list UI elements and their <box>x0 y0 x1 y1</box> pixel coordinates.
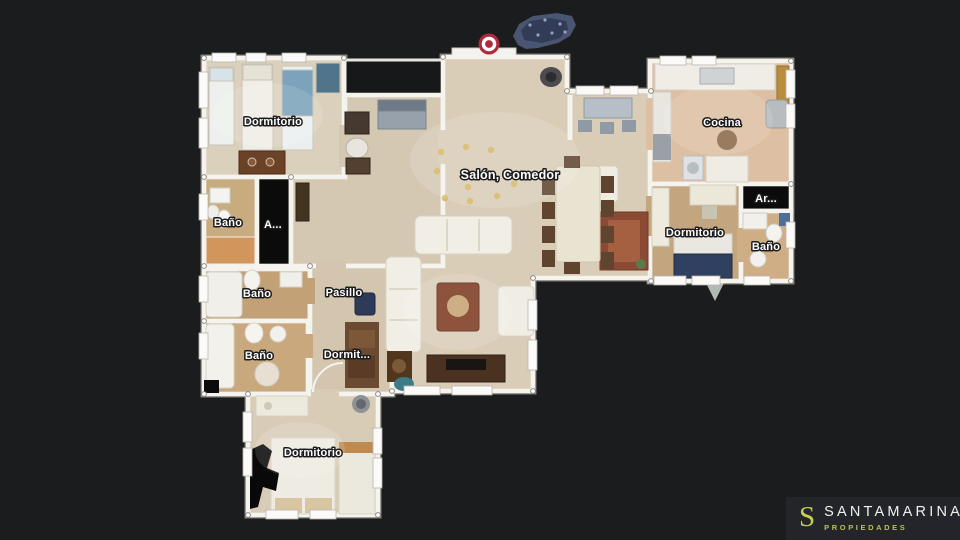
room-label-armario-right: Ar... <box>755 193 777 205</box>
room-label-bano-lower-left: Baño <box>245 350 273 362</box>
brand-monogram-icon: S <box>799 503 815 532</box>
brand-logo: S SANTAMARINA PROPIEDADES <box>786 497 960 540</box>
room-label-pasillo: Pasillo <box>326 287 363 299</box>
room-label-cocina: Cocina <box>703 117 742 129</box>
brand-tagline: PROPIEDADES <box>824 523 960 532</box>
dark-room-texture <box>349 330 375 348</box>
room-label-bano-right: Baño <box>752 241 780 253</box>
room-label-bano-mid-left: Baño <box>243 288 271 300</box>
room-label-dormitorio-bottom: Dormitorio <box>284 447 342 459</box>
brand-name: SANTAMARINA <box>824 505 960 521</box>
room-label-bano-left: Baño <box>214 217 242 229</box>
camera-marker-icon[interactable] <box>479 34 500 55</box>
floorplan-viewer[interactable]: Dormitorio Baño A... Baño Pasillo Baño D… <box>0 0 960 540</box>
room-label-dormitorio-right: Dormitorio <box>666 227 724 239</box>
room-label-armario-left: A... <box>264 219 282 231</box>
room-label-dormitorio-mid: Dormit... <box>324 349 370 361</box>
void-patio <box>345 60 443 95</box>
scan-drip <box>706 283 724 301</box>
scan-artifact <box>513 13 576 49</box>
room-label-dormitorio-top-left: Dormitorio <box>244 116 302 128</box>
floorplan-svg[interactable]: Dormitorio Baño A... Baño Pasillo Baño D… <box>0 0 960 540</box>
room-label-salon-comedor: Salón, Comedor <box>461 168 560 182</box>
